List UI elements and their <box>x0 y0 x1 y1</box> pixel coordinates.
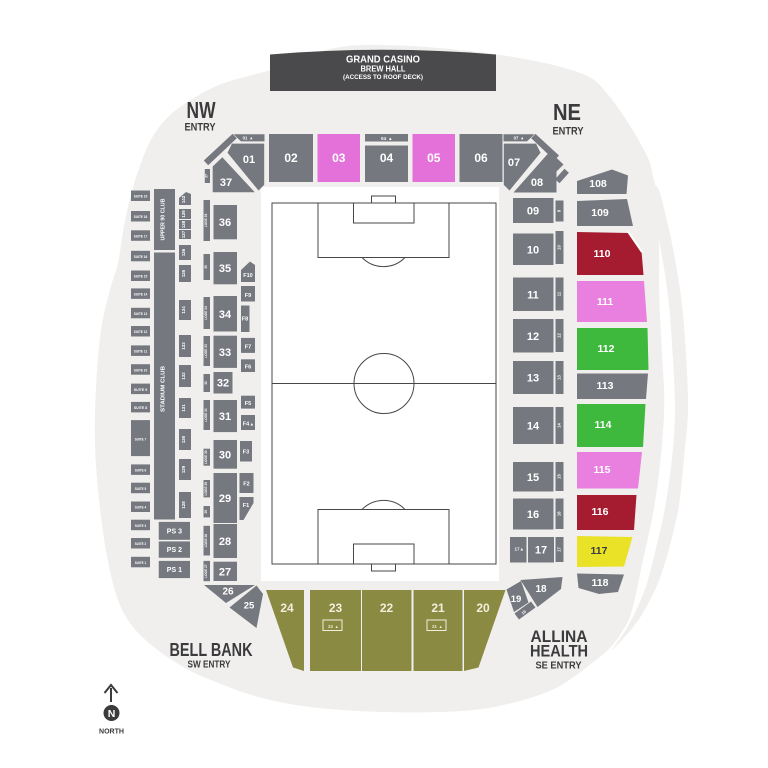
svg-text:21: 21 <box>431 601 445 615</box>
svg-text:21: 21 <box>432 624 437 629</box>
svg-text:SUITE 14: SUITE 14 <box>134 293 148 297</box>
svg-text:23: 23 <box>329 601 343 615</box>
svg-text:SUITE 5: SUITE 5 <box>135 487 147 491</box>
svg-text:ENTRY: ENTRY <box>553 126 585 138</box>
svg-text:139: 139 <box>181 210 186 218</box>
svg-text:04: 04 <box>380 151 394 165</box>
svg-text:F3: F3 <box>243 450 249 456</box>
svg-text:13: 13 <box>556 375 561 380</box>
svg-text:29: 29 <box>219 493 231 505</box>
svg-text:24: 24 <box>280 601 294 615</box>
svg-text:SUITE 1: SUITE 1 <box>135 561 147 565</box>
svg-text:SUITE 12: SUITE 12 <box>134 330 148 334</box>
svg-text:10: 10 <box>527 244 539 256</box>
svg-text:02: 02 <box>284 151 298 165</box>
svg-text:F8: F8 <box>242 317 248 323</box>
svg-text:137: 137 <box>181 230 186 238</box>
svg-text:19: 19 <box>511 594 522 605</box>
svg-text:07: 07 <box>514 135 519 140</box>
svg-text:BREW HALL: BREW HALL <box>361 65 406 74</box>
svg-text:03: 03 <box>332 151 346 165</box>
svg-text:F2: F2 <box>243 482 249 488</box>
svg-text:12: 12 <box>556 333 561 338</box>
svg-text:SUITE 18: SUITE 18 <box>134 215 148 219</box>
svg-text:113: 113 <box>597 380 614 392</box>
svg-text:PS 1: PS 1 <box>167 567 182 574</box>
svg-text:SUITE 6: SUITE 6 <box>135 469 147 473</box>
svg-text:LOGE 28: LOGE 28 <box>204 534 208 548</box>
svg-text:136: 136 <box>181 248 186 256</box>
svg-text:SUITE 13: SUITE 13 <box>134 312 148 316</box>
svg-text:07: 07 <box>508 157 520 169</box>
svg-text:SUITE 4: SUITE 4 <box>135 506 147 510</box>
svg-text:F7: F7 <box>245 345 251 351</box>
svg-text:16: 16 <box>527 509 539 521</box>
svg-text:SUITE 3: SUITE 3 <box>135 524 147 528</box>
svg-text:135: 135 <box>181 269 186 277</box>
svg-text:20: 20 <box>476 601 490 615</box>
svg-text:134: 134 <box>181 306 186 314</box>
svg-text:ENTRY: ENTRY <box>185 122 217 134</box>
svg-text:F1: F1 <box>243 503 249 509</box>
svg-text:133: 133 <box>181 342 186 350</box>
svg-text:130: 130 <box>181 435 186 443</box>
svg-text:LOGE 29: LOGE 29 <box>204 482 208 496</box>
svg-text:35: 35 <box>204 265 208 269</box>
svg-text:12: 12 <box>527 331 539 343</box>
svg-text:30: 30 <box>219 449 231 461</box>
svg-text:SUITE 19: SUITE 19 <box>134 195 148 199</box>
svg-text:01: 01 <box>243 154 255 166</box>
svg-text:11: 11 <box>527 289 539 301</box>
svg-text:SUITE 15: SUITE 15 <box>134 275 148 279</box>
svg-text:STADIUM CLUB: STADIUM CLUB <box>161 366 167 412</box>
svg-text:N: N <box>108 708 116 720</box>
svg-text:143: 143 <box>181 195 186 203</box>
svg-text:22: 22 <box>380 601 394 615</box>
svg-text:112: 112 <box>598 343 615 355</box>
svg-text:NE: NE <box>553 99 581 125</box>
svg-text:SUITE 9: SUITE 9 <box>134 388 148 392</box>
svg-text:34: 34 <box>219 309 232 321</box>
svg-text:F4: F4 <box>243 422 250 428</box>
svg-text:09: 09 <box>527 206 539 218</box>
svg-text:26: 26 <box>222 587 234 598</box>
svg-text:17: 17 <box>556 547 561 552</box>
svg-text:LOGE 31: LOGE 31 <box>204 408 208 422</box>
svg-text:SW ENTRY: SW ENTRY <box>188 660 231 671</box>
svg-text:17: 17 <box>535 545 547 557</box>
svg-text:F10: F10 <box>243 273 252 279</box>
svg-text:17: 17 <box>514 547 520 552</box>
svg-text:F5: F5 <box>245 401 251 407</box>
svg-text:36: 36 <box>219 217 231 229</box>
svg-text:SUITE 10: SUITE 10 <box>134 368 148 372</box>
svg-text:28: 28 <box>219 536 231 548</box>
svg-text:14: 14 <box>556 423 561 428</box>
svg-text:08: 08 <box>531 177 543 189</box>
svg-text:37: 37 <box>220 177 232 189</box>
svg-text:118: 118 <box>592 577 609 589</box>
svg-text:132: 132 <box>181 372 186 380</box>
svg-text:10: 10 <box>556 245 561 250</box>
svg-text:(ACCESS TO ROOF DECK): (ACCESS TO ROOF DECK) <box>343 74 423 81</box>
svg-text:128: 128 <box>181 501 186 509</box>
svg-text:F6: F6 <box>245 365 251 371</box>
svg-text:114: 114 <box>595 419 612 431</box>
svg-text:111: 111 <box>597 296 614 308</box>
svg-text:LOGE 27: LOGE 27 <box>204 564 208 578</box>
svg-text:06: 06 <box>474 151 488 165</box>
svg-text:SUITE 8: SUITE 8 <box>134 406 148 410</box>
svg-text:109: 109 <box>591 207 609 219</box>
svg-text:117: 117 <box>591 545 608 557</box>
svg-text:01: 01 <box>243 135 248 140</box>
svg-text:LOGE 30: LOGE 30 <box>204 450 208 464</box>
svg-text:14: 14 <box>527 421 540 433</box>
svg-text:UPPER 90 CLUB: UPPER 90 CLUB <box>161 198 167 240</box>
svg-text:129: 129 <box>181 465 186 473</box>
svg-text:PS 2: PS 2 <box>167 547 182 554</box>
svg-text:LOGE 34: LOGE 34 <box>204 306 208 320</box>
svg-text:NW: NW <box>187 97 217 123</box>
svg-text:05: 05 <box>427 151 441 165</box>
svg-text:16: 16 <box>556 511 561 516</box>
svg-text:25: 25 <box>244 601 255 612</box>
svg-text:37: 37 <box>204 174 208 178</box>
svg-text:35: 35 <box>219 263 231 275</box>
svg-text:138: 138 <box>181 220 186 228</box>
svg-text:LOGE 36: LOGE 36 <box>204 214 208 228</box>
svg-text:LOGE 33: LOGE 33 <box>204 344 208 358</box>
svg-text:SUITE 16: SUITE 16 <box>134 255 148 259</box>
svg-text:116: 116 <box>592 506 609 518</box>
svg-text:SUITE 17: SUITE 17 <box>134 235 148 239</box>
svg-text:18: 18 <box>535 584 547 595</box>
svg-text:SUITE 2: SUITE 2 <box>135 542 147 546</box>
svg-text:23: 23 <box>328 624 333 629</box>
svg-text:HEALTH: HEALTH <box>530 642 588 661</box>
svg-text:15: 15 <box>527 472 539 484</box>
svg-text:13: 13 <box>527 373 539 385</box>
svg-text:27: 27 <box>219 566 231 578</box>
svg-text:29: 29 <box>204 510 208 514</box>
svg-text:33: 33 <box>219 347 231 359</box>
svg-text:SUITE 11: SUITE 11 <box>134 350 148 354</box>
svg-text:F9: F9 <box>245 293 251 299</box>
svg-text:31: 31 <box>219 411 231 423</box>
svg-text:04: 04 <box>381 136 387 141</box>
svg-text:15: 15 <box>556 474 561 479</box>
svg-text:NORTH: NORTH <box>99 727 124 736</box>
svg-text:32: 32 <box>217 378 229 390</box>
svg-text:11: 11 <box>556 291 561 296</box>
svg-text:108: 108 <box>589 178 607 190</box>
svg-text:SUITE 7: SUITE 7 <box>135 438 147 442</box>
svg-text:SE ENTRY: SE ENTRY <box>536 661 582 672</box>
svg-text:110: 110 <box>594 248 611 260</box>
svg-text:32: 32 <box>204 381 208 385</box>
svg-text:131: 131 <box>181 404 186 412</box>
svg-text:BELL BANK: BELL BANK <box>170 640 253 660</box>
svg-text:115: 115 <box>594 464 611 476</box>
svg-text:PS 3: PS 3 <box>167 528 182 535</box>
